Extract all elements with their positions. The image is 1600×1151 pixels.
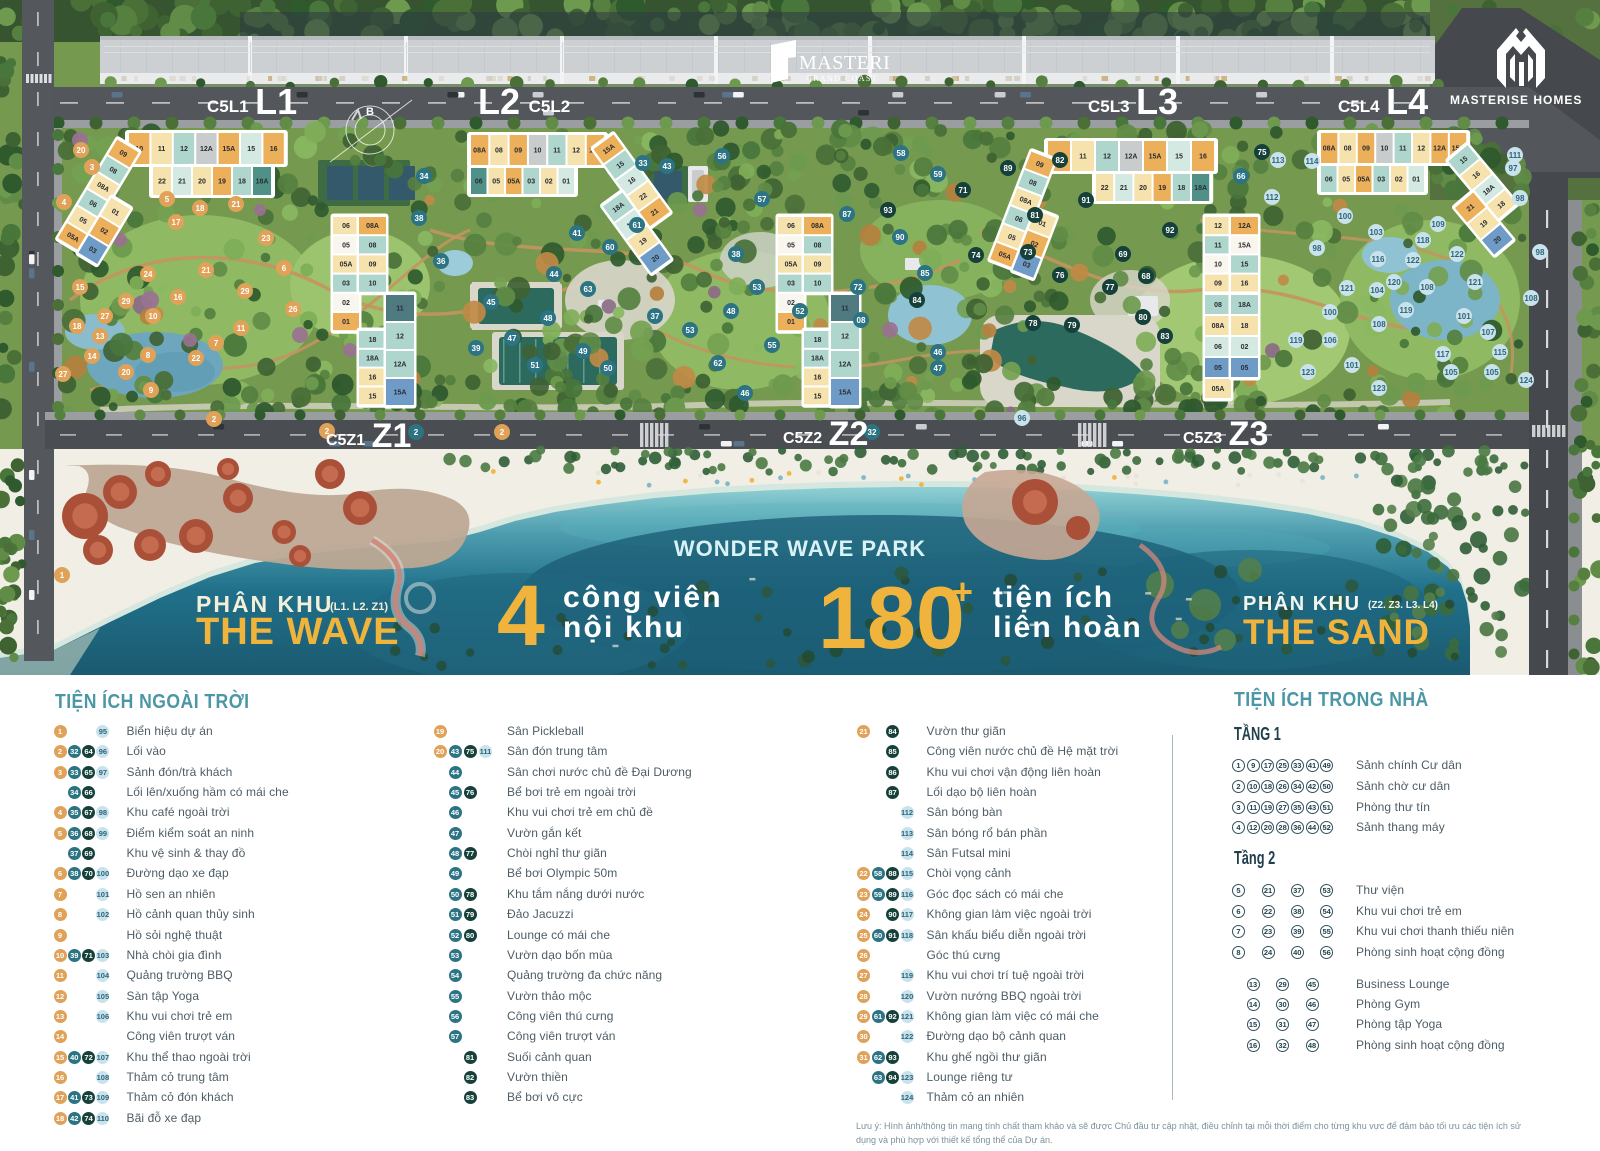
svg-text:21: 21 (232, 200, 241, 209)
svg-text:118: 118 (1417, 236, 1430, 245)
svg-text:02: 02 (1241, 344, 1249, 351)
svg-text:18: 18 (73, 322, 82, 331)
svg-text:12A: 12A (839, 362, 852, 369)
svg-text:05: 05 (492, 179, 500, 186)
svg-text:56: 56 (718, 152, 727, 161)
svg-text:10: 10 (149, 312, 158, 321)
svg-text:05A: 05A (507, 179, 520, 186)
svg-text:71: 71 (959, 186, 968, 195)
svg-text:nội khu: nội khu (563, 611, 685, 644)
svg-text:L3: L3 (1136, 81, 1178, 122)
svg-text:75: 75 (1258, 148, 1267, 157)
svg-text:18A: 18A (256, 179, 269, 186)
svg-text:05A: 05A (1357, 177, 1370, 184)
svg-text:101: 101 (1457, 312, 1471, 321)
svg-text:82: 82 (1056, 156, 1065, 165)
svg-text:121: 121 (1340, 284, 1354, 293)
svg-text:08A: 08A (366, 223, 379, 230)
svg-text:112: 112 (1266, 193, 1279, 202)
svg-text:11: 11 (553, 148, 561, 155)
svg-text:98: 98 (1516, 194, 1525, 203)
svg-text:12: 12 (396, 334, 404, 341)
svg-text:51: 51 (531, 361, 540, 370)
svg-text:101: 101 (1345, 361, 1359, 370)
svg-text:16: 16 (1241, 281, 1249, 288)
svg-text:10: 10 (1214, 262, 1222, 269)
svg-text:MASTERI: MASTERI (799, 52, 890, 74)
svg-text:105: 105 (1485, 368, 1499, 377)
svg-text:81: 81 (1031, 211, 1040, 220)
svg-text:16: 16 (814, 375, 822, 382)
svg-text:L2: L2 (478, 81, 520, 122)
svg-text:98: 98 (1536, 248, 1545, 257)
svg-text:18: 18 (196, 204, 205, 213)
svg-text:47: 47 (934, 364, 943, 373)
svg-text:121: 121 (1468, 278, 1482, 287)
svg-text:62: 62 (714, 359, 723, 368)
svg-text:18A: 18A (366, 356, 379, 363)
svg-text:103: 103 (1369, 228, 1383, 237)
svg-text:27: 27 (59, 370, 68, 379)
svg-text:C5L3: C5L3 (1088, 97, 1130, 116)
svg-text:20: 20 (1139, 185, 1147, 192)
svg-text:02: 02 (342, 300, 350, 307)
svg-text:WONDER WAVE PARK: WONDER WAVE PARK (674, 536, 926, 561)
svg-text:5: 5 (165, 195, 170, 204)
svg-text:89: 89 (1004, 164, 1013, 173)
svg-text:39: 39 (472, 344, 481, 353)
svg-text:108: 108 (1524, 294, 1538, 303)
svg-text:21: 21 (178, 179, 186, 186)
svg-text:12: 12 (180, 146, 188, 153)
svg-text:18: 18 (369, 337, 377, 344)
svg-text:20: 20 (122, 368, 131, 377)
svg-text:74: 74 (972, 251, 981, 260)
svg-text:15: 15 (76, 283, 85, 292)
svg-text:03: 03 (342, 281, 350, 288)
svg-text:3: 3 (90, 163, 95, 172)
svg-text:6: 6 (282, 264, 287, 273)
svg-text:06: 06 (787, 223, 795, 230)
svg-text:C5L1: C5L1 (207, 97, 249, 116)
svg-text:22: 22 (158, 179, 166, 186)
svg-text:50: 50 (604, 364, 613, 373)
svg-text:08A: 08A (1323, 146, 1336, 153)
svg-text:18A: 18A (1194, 185, 1207, 192)
svg-text:08: 08 (1344, 146, 1352, 153)
svg-text:53: 53 (686, 326, 695, 335)
svg-text:09: 09 (369, 262, 377, 269)
svg-text:L4: L4 (1386, 81, 1428, 122)
svg-text:THE WAVE: THE WAVE (196, 611, 400, 653)
svg-text:05A: 05A (785, 262, 798, 269)
svg-text:77: 77 (1106, 283, 1115, 292)
svg-text:45: 45 (487, 298, 496, 307)
svg-text:180: 180 (818, 568, 965, 667)
svg-text:03: 03 (787, 281, 795, 288)
svg-text:32: 32 (868, 428, 877, 437)
svg-text:107: 107 (1481, 328, 1495, 337)
svg-text:123: 123 (1301, 368, 1315, 377)
svg-text:18: 18 (238, 179, 246, 186)
svg-text:2: 2 (212, 415, 217, 424)
svg-text:08A: 08A (811, 223, 824, 230)
svg-text:01: 01 (787, 319, 795, 326)
svg-text:18: 18 (1241, 323, 1249, 330)
svg-text:117: 117 (1437, 350, 1450, 359)
svg-text:61: 61 (633, 221, 642, 230)
svg-text:4: 4 (62, 198, 67, 207)
svg-text:15: 15 (1241, 262, 1249, 269)
svg-text:124: 124 (1519, 376, 1533, 385)
svg-text:06: 06 (1214, 344, 1222, 351)
svg-text:12: 12 (1214, 223, 1222, 230)
svg-text:38: 38 (415, 214, 424, 223)
svg-text:11: 11 (396, 306, 404, 313)
svg-text:12A: 12A (1433, 146, 1446, 153)
svg-text:122: 122 (1406, 256, 1420, 265)
svg-text:11: 11 (237, 324, 246, 333)
svg-text:08: 08 (857, 316, 866, 325)
svg-text:02: 02 (545, 179, 553, 186)
svg-text:16: 16 (174, 293, 183, 302)
svg-text:tiện ích: tiện ích (993, 581, 1114, 614)
svg-text:97: 97 (1509, 164, 1518, 173)
svg-text:12A: 12A (1238, 223, 1251, 230)
svg-text:66: 66 (1237, 172, 1246, 181)
svg-text:MASTERISE HOMES: MASTERISE HOMES (1450, 93, 1582, 107)
svg-text:41: 41 (573, 229, 582, 238)
svg-text:09: 09 (814, 262, 822, 269)
svg-text:Z1: Z1 (372, 417, 412, 455)
svg-text:78: 78 (1029, 319, 1038, 328)
svg-text:01: 01 (1412, 177, 1420, 184)
svg-text:16: 16 (369, 375, 377, 382)
svg-text:109: 109 (1431, 220, 1445, 229)
svg-text:36: 36 (437, 257, 446, 266)
svg-text:59: 59 (934, 170, 943, 179)
svg-text:100: 100 (1323, 308, 1337, 317)
svg-text:1: 1 (60, 571, 65, 580)
svg-text:08A: 08A (1212, 323, 1225, 330)
svg-text:4: 4 (497, 568, 545, 664)
svg-text:113: 113 (1272, 156, 1285, 165)
svg-text:12: 12 (1417, 146, 1425, 153)
svg-text:105: 105 (1444, 368, 1458, 377)
svg-text:98: 98 (1313, 244, 1322, 253)
svg-text:79: 79 (1068, 321, 1077, 330)
svg-text:111: 111 (1509, 151, 1522, 160)
svg-text:12: 12 (841, 334, 849, 341)
svg-text:03: 03 (527, 179, 535, 186)
svg-text:+: + (952, 571, 973, 612)
svg-text:123: 123 (1372, 384, 1386, 393)
svg-text:48: 48 (727, 307, 736, 316)
svg-text:53: 53 (753, 283, 762, 292)
svg-text:85: 85 (921, 269, 930, 278)
svg-text:THE SAND: THE SAND (1243, 613, 1430, 652)
svg-text:38: 38 (732, 250, 741, 259)
svg-text:05: 05 (1241, 365, 1249, 372)
svg-text:15: 15 (814, 393, 822, 400)
svg-text:9: 9 (149, 386, 154, 395)
svg-text:43: 43 (663, 162, 672, 171)
svg-text:11: 11 (158, 146, 166, 153)
svg-text:27: 27 (101, 312, 110, 321)
svg-text:96: 96 (1018, 414, 1027, 423)
svg-text:công viên: công viên (563, 581, 723, 614)
svg-text:21: 21 (1120, 185, 1128, 192)
svg-text:69: 69 (1119, 250, 1128, 259)
svg-text:22: 22 (192, 354, 201, 363)
svg-text:liên hoàn: liên hoàn (993, 611, 1143, 644)
svg-text:57: 57 (758, 195, 767, 204)
svg-text:29: 29 (122, 297, 131, 306)
svg-text:14: 14 (88, 352, 97, 361)
svg-text:26: 26 (289, 305, 298, 314)
svg-text:47: 47 (508, 334, 517, 343)
svg-text:2: 2 (414, 428, 419, 437)
svg-text:33: 33 (639, 159, 648, 168)
svg-text:15A: 15A (1149, 154, 1162, 161)
svg-text:10: 10 (369, 281, 377, 288)
svg-text:11: 11 (1399, 146, 1407, 153)
svg-text:119: 119 (1290, 336, 1303, 345)
svg-text:48: 48 (544, 314, 553, 323)
svg-text:15: 15 (247, 146, 255, 153)
svg-text:18A: 18A (811, 356, 824, 363)
svg-text:60: 60 (606, 243, 615, 252)
svg-text:106: 106 (1323, 336, 1337, 345)
svg-text:52: 52 (796, 307, 805, 316)
svg-text:C5Z3: C5Z3 (1183, 430, 1222, 447)
svg-text:01: 01 (342, 319, 350, 326)
svg-text:GRAND COAST: GRAND COAST (806, 74, 878, 83)
svg-text:19: 19 (1158, 185, 1166, 192)
svg-text:09: 09 (514, 148, 522, 155)
svg-text:09: 09 (1362, 146, 1370, 153)
svg-text:02: 02 (1395, 177, 1403, 184)
svg-text:13: 13 (96, 332, 105, 341)
svg-text:PHÂN KHU: PHÂN KHU (1243, 591, 1361, 615)
svg-text:C5L4: C5L4 (1338, 97, 1380, 116)
svg-text:92: 92 (1166, 226, 1175, 235)
svg-text:34: 34 (420, 172, 429, 181)
svg-text:29: 29 (241, 287, 250, 296)
svg-text:72: 72 (854, 283, 863, 292)
svg-text:11: 11 (1079, 154, 1087, 161)
svg-text:46: 46 (741, 389, 750, 398)
svg-text:55: 55 (768, 341, 777, 350)
svg-text:08A: 08A (473, 148, 486, 155)
svg-text:15A: 15A (222, 146, 235, 153)
svg-text:2: 2 (500, 428, 505, 437)
svg-text:87: 87 (843, 210, 852, 219)
svg-text:10: 10 (534, 148, 542, 155)
svg-text:46: 46 (934, 348, 943, 357)
svg-text:Z3: Z3 (1229, 415, 1269, 453)
svg-text:05: 05 (1214, 365, 1222, 372)
svg-text:119: 119 (1400, 306, 1413, 315)
svg-text:108: 108 (1420, 283, 1434, 292)
svg-text:7: 7 (214, 339, 219, 348)
svg-text:06: 06 (475, 179, 483, 186)
svg-text:18A: 18A (1238, 302, 1251, 309)
svg-text:12: 12 (1103, 154, 1111, 161)
svg-text:03: 03 (1377, 177, 1385, 184)
svg-text:10: 10 (814, 281, 822, 288)
svg-text:16: 16 (270, 146, 278, 153)
svg-text:05: 05 (1342, 177, 1350, 184)
svg-text:15A: 15A (1238, 242, 1251, 249)
svg-text:21: 21 (202, 266, 211, 275)
svg-text:15A: 15A (394, 390, 407, 397)
svg-text:05A: 05A (340, 262, 353, 269)
svg-text:120: 120 (1387, 278, 1401, 287)
svg-text:18: 18 (1178, 185, 1186, 192)
svg-text:12A: 12A (394, 362, 407, 369)
svg-text:B: B (366, 106, 374, 118)
svg-text:08: 08 (814, 242, 822, 249)
svg-text:05: 05 (342, 242, 350, 249)
svg-text:11: 11 (1214, 242, 1222, 249)
svg-text:115: 115 (1494, 348, 1507, 357)
svg-text:12A: 12A (200, 146, 213, 153)
svg-text:06: 06 (1325, 177, 1333, 184)
svg-text:01: 01 (562, 179, 570, 186)
svg-text:12A: 12A (1125, 154, 1138, 161)
svg-text:58: 58 (897, 149, 906, 158)
svg-text:02: 02 (787, 300, 795, 307)
svg-text:76: 76 (1056, 271, 1065, 280)
svg-text:19: 19 (218, 179, 226, 186)
svg-text:05A: 05A (1212, 386, 1225, 393)
svg-text:20: 20 (198, 179, 206, 186)
svg-text:10: 10 (1381, 146, 1389, 153)
svg-text:Z2: Z2 (829, 415, 869, 453)
svg-text:37: 37 (651, 312, 660, 321)
svg-text:C5Z1: C5Z1 (326, 432, 365, 449)
svg-text:108: 108 (1372, 320, 1386, 329)
svg-text:80: 80 (1139, 313, 1148, 322)
svg-text:15A: 15A (839, 390, 852, 397)
svg-text:16: 16 (1199, 154, 1207, 161)
svg-text:18: 18 (814, 337, 822, 344)
svg-text:44: 44 (550, 270, 559, 279)
svg-text:23: 23 (262, 234, 271, 243)
svg-text:22: 22 (1101, 185, 1109, 192)
svg-text:83: 83 (1161, 332, 1170, 341)
svg-text:C5Z2: C5Z2 (783, 430, 822, 447)
svg-text:122: 122 (1450, 250, 1464, 259)
svg-text:93: 93 (884, 206, 893, 215)
svg-text:49: 49 (579, 347, 588, 356)
svg-text:05: 05 (787, 242, 795, 249)
svg-text:114: 114 (1306, 157, 1319, 166)
svg-text:8: 8 (146, 351, 151, 360)
svg-text:08: 08 (369, 242, 377, 249)
svg-text:15: 15 (1175, 154, 1183, 161)
svg-text:91: 91 (1082, 196, 1091, 205)
svg-text:08: 08 (1214, 302, 1222, 309)
svg-text:L1: L1 (255, 81, 297, 122)
svg-text:17: 17 (172, 218, 181, 227)
svg-text:84: 84 (913, 296, 922, 305)
svg-text:63: 63 (584, 285, 593, 294)
svg-text:104: 104 (1370, 286, 1384, 295)
svg-text:90: 90 (896, 233, 905, 242)
svg-text:15: 15 (369, 393, 377, 400)
svg-text:20: 20 (77, 146, 86, 155)
svg-text:(Z2. Z3. L3. L4): (Z2. Z3. L3. L4) (1368, 600, 1438, 611)
svg-text:06: 06 (342, 223, 350, 230)
svg-text:100: 100 (1338, 212, 1352, 221)
svg-text:11: 11 (841, 306, 849, 313)
svg-text:68: 68 (1142, 272, 1151, 281)
svg-text:08: 08 (495, 148, 503, 155)
svg-text:116: 116 (1372, 255, 1385, 264)
svg-text:73: 73 (1024, 248, 1033, 257)
svg-text:12: 12 (572, 148, 580, 155)
svg-text:24: 24 (144, 270, 153, 279)
svg-text:C5L2: C5L2 (529, 97, 571, 116)
svg-text:09: 09 (1214, 281, 1222, 288)
